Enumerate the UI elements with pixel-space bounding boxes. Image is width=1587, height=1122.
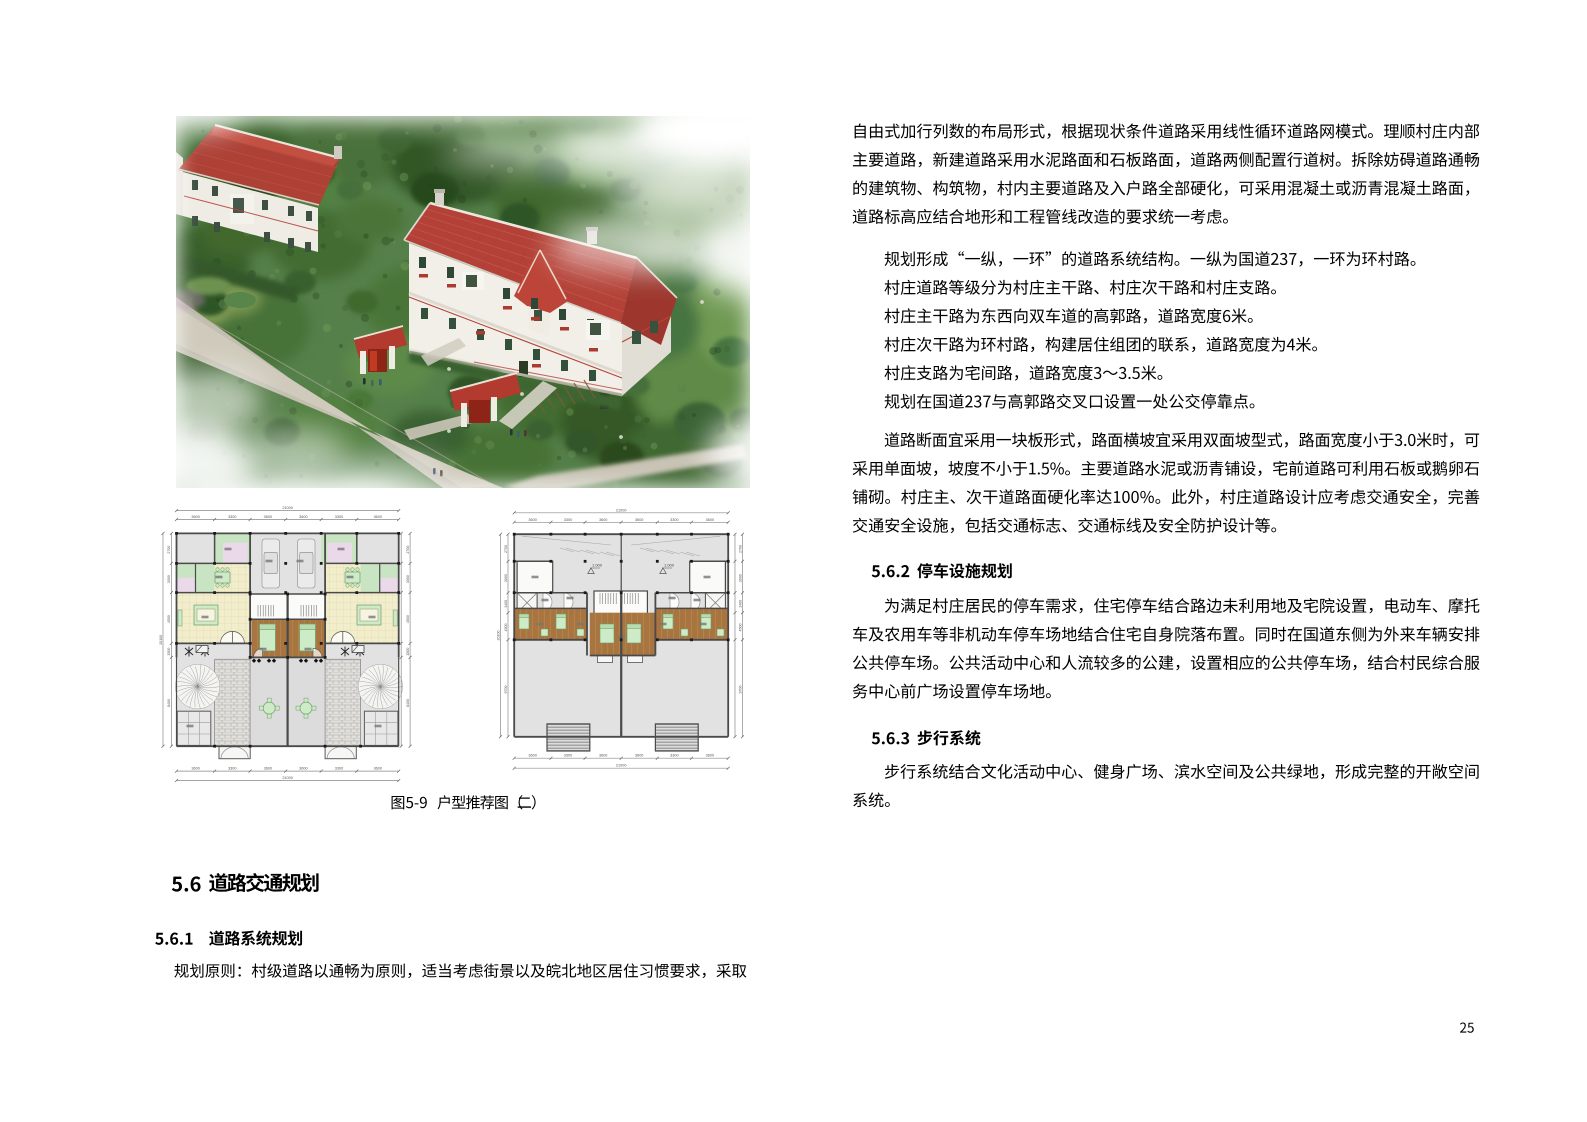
svg-text:21000: 21000	[616, 508, 627, 512]
svg-text:9700: 9700	[504, 686, 508, 694]
svg-text:3300: 3300	[335, 767, 343, 771]
svg-text:3300: 3300	[228, 767, 236, 771]
svg-text:3000: 3000	[738, 574, 742, 582]
svg-text:4500: 4500	[504, 624, 508, 632]
svg-text:3600: 3600	[599, 754, 607, 758]
svg-text:3300: 3300	[228, 515, 236, 519]
svg-text:3300: 3300	[670, 754, 678, 758]
svg-text:21000: 21000	[616, 764, 627, 768]
svg-text:8400: 8400	[406, 699, 410, 707]
svg-text:9700: 9700	[738, 686, 742, 694]
svg-text:2700: 2700	[738, 545, 742, 553]
svg-text:3300: 3300	[564, 518, 572, 522]
svg-text:1400: 1400	[504, 600, 508, 608]
svg-text:3600: 3600	[191, 767, 199, 771]
svg-text:3600: 3600	[706, 754, 714, 758]
svg-text:3000: 3000	[504, 574, 508, 582]
svg-text:20100: 20100	[159, 635, 163, 645]
svg-text:21000: 21000	[282, 506, 293, 510]
svg-text:2700: 2700	[504, 545, 508, 553]
svg-text:4500: 4500	[167, 615, 171, 623]
svg-text:3600: 3600	[374, 767, 382, 771]
svg-text:1.000: 1.000	[592, 563, 603, 568]
svg-text:3600: 3600	[635, 518, 643, 522]
svg-text:4500: 4500	[406, 615, 410, 623]
svg-text:1500: 1500	[167, 648, 171, 656]
svg-text:21000: 21000	[282, 776, 293, 780]
svg-text:2700: 2700	[167, 546, 171, 554]
svg-text:20100: 20100	[496, 631, 500, 641]
svg-text:3600: 3600	[264, 767, 272, 771]
svg-text:3600: 3600	[706, 518, 714, 522]
svg-text:8400: 8400	[167, 699, 171, 707]
svg-text:1400: 1400	[738, 600, 742, 608]
svg-text:3600: 3600	[374, 515, 382, 519]
svg-text:3300: 3300	[670, 518, 678, 522]
svg-text:3600: 3600	[599, 518, 607, 522]
svg-text:3600: 3600	[528, 518, 536, 522]
svg-text:3600: 3600	[264, 515, 272, 519]
svg-text:3600: 3600	[191, 515, 199, 519]
svg-text:3600: 3600	[299, 515, 307, 519]
svg-text:3300: 3300	[335, 515, 343, 519]
svg-text:3300: 3300	[564, 754, 572, 758]
svg-text:3600: 3600	[635, 754, 643, 758]
svg-text:3000: 3000	[406, 575, 410, 583]
svg-text:2700: 2700	[406, 546, 410, 554]
svg-text:3000: 3000	[167, 575, 171, 583]
svg-text:4500: 4500	[738, 624, 742, 632]
svg-text:3600: 3600	[528, 754, 536, 758]
svg-text:1.000: 1.000	[664, 563, 675, 568]
svg-text:3600: 3600	[299, 767, 307, 771]
svg-text:1500: 1500	[406, 648, 410, 656]
